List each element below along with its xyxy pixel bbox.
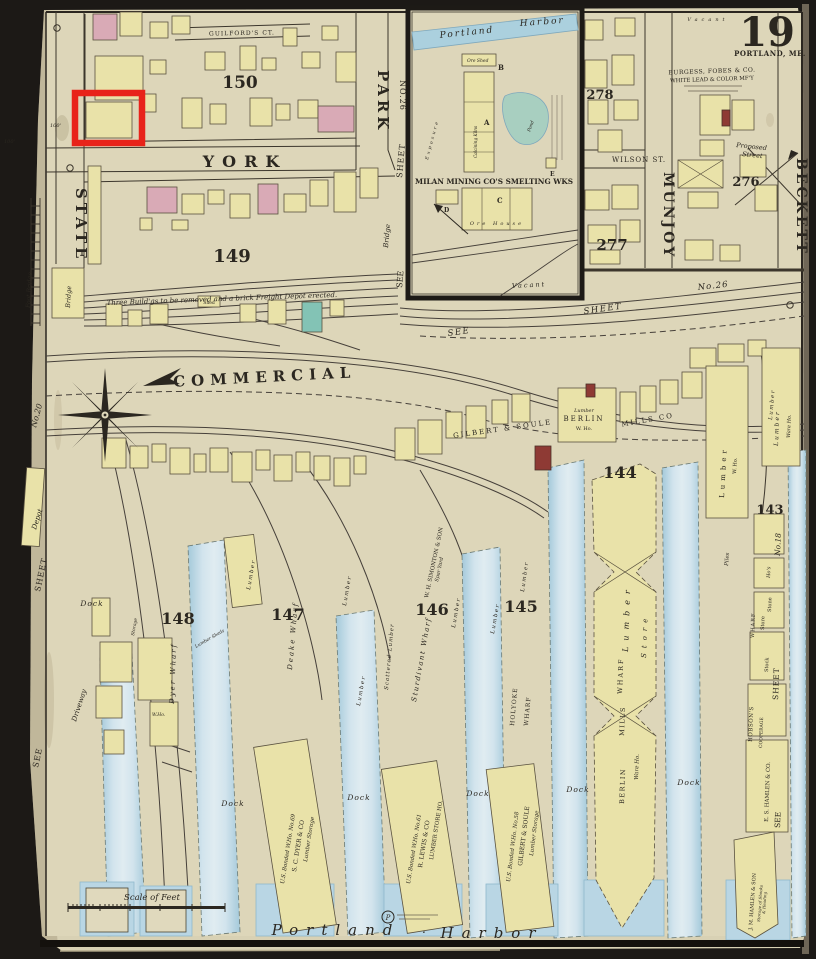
harbor-dot: . — [422, 922, 426, 936]
building — [688, 192, 718, 208]
building — [140, 218, 152, 230]
store-label: Store — [760, 616, 766, 630]
smelter-building-a — [464, 72, 494, 172]
inset-ore-house-label: Ore House — [470, 221, 524, 227]
inset-frame — [408, 8, 582, 298]
building — [512, 394, 530, 422]
inset-map: Portland Harbor Ore Shed B Calcining Kil… — [408, 8, 582, 298]
building — [354, 456, 366, 474]
block-145: 145 — [504, 597, 537, 616]
building — [700, 140, 724, 156]
dock-label: Dock — [346, 793, 370, 802]
building — [334, 458, 350, 486]
margin-see-right: SEE — [773, 812, 783, 828]
building — [130, 446, 148, 468]
hobsons-label: HOBSON'S — [748, 706, 755, 742]
building — [318, 106, 354, 132]
building — [232, 452, 252, 482]
margin-see-inset: SEE — [395, 270, 405, 288]
block-146: 146 — [415, 600, 448, 619]
building — [106, 304, 122, 326]
building — [395, 428, 415, 460]
building — [296, 452, 310, 472]
bm-mills-label: MILLS — [618, 706, 627, 736]
building — [690, 348, 716, 368]
dim-100b: 100' — [50, 123, 61, 129]
building — [585, 60, 607, 88]
street-label-munjoy: MUNJOY — [660, 172, 676, 259]
dock-label: Dock — [565, 785, 589, 794]
bm-wharf-label: WHARF — [616, 657, 625, 694]
building — [210, 448, 228, 472]
block-278: 278 — [586, 88, 613, 103]
stock-label: Stock — [764, 657, 771, 672]
scale-label: Scale of Feet — [124, 893, 181, 903]
building — [720, 245, 740, 261]
street-label-wilson: WILSON ST. — [612, 156, 666, 164]
building — [100, 642, 132, 682]
building — [660, 380, 678, 404]
building — [268, 300, 286, 324]
margin-bridge-state: Bridge — [64, 285, 73, 309]
building — [147, 187, 177, 213]
building — [194, 454, 206, 472]
building — [96, 686, 122, 718]
building — [256, 450, 270, 470]
building — [640, 386, 656, 412]
inset-key-a: A — [483, 118, 490, 127]
shed-label: Shed — [203, 300, 215, 306]
building — [150, 702, 178, 746]
building — [535, 446, 551, 470]
building — [240, 46, 256, 70]
building — [93, 14, 117, 40]
building — [588, 100, 608, 124]
sheet-city: PORTLAND, ME. — [734, 49, 806, 58]
building — [336, 52, 356, 82]
building — [314, 456, 330, 480]
berlin-mills-wharf-building — [592, 464, 656, 928]
map-canvas: Portland Harbor Ore Shed B Calcining Kil… — [0, 0, 816, 959]
dock-label: Dock — [676, 778, 700, 787]
inset-ore-shed-label: Ore Shed — [467, 58, 489, 64]
building — [150, 22, 168, 38]
berlin-who-label: W. Ho. — [576, 426, 593, 432]
building — [334, 172, 356, 212]
bottom-frame-band — [40, 940, 804, 947]
inset-key-b: B — [498, 63, 504, 72]
building — [585, 190, 609, 210]
building — [330, 300, 344, 316]
hos-label: Ho's — [766, 566, 772, 579]
building — [546, 158, 556, 168]
wharf-tip — [86, 888, 128, 932]
building — [722, 110, 730, 126]
street-label-park: PARK — [374, 70, 392, 133]
building — [360, 168, 378, 198]
building — [172, 220, 188, 230]
building — [205, 52, 225, 70]
building — [283, 28, 297, 46]
harbor-word-portland: Portland — [271, 921, 401, 939]
dock-label: Dock — [465, 789, 489, 798]
berlin-label: BERLIN — [563, 415, 604, 423]
building — [240, 304, 256, 322]
lumber-ware-house — [762, 348, 800, 466]
compass-rose — [58, 368, 152, 462]
building — [612, 185, 638, 209]
inset-key-d: D — [444, 207, 449, 214]
building — [598, 130, 622, 152]
building — [612, 55, 634, 85]
ware-right-label-1: Lumber — [773, 410, 781, 447]
ware-right-label-2: Ware Ho. — [786, 414, 793, 438]
dim-100a: 100' — [4, 139, 15, 145]
building — [128, 310, 142, 326]
building — [682, 372, 702, 398]
cooperage-label: COOPERAGE — [758, 717, 765, 748]
building — [104, 730, 124, 754]
block-277: 277 — [596, 236, 627, 254]
building — [298, 100, 318, 118]
building — [210, 104, 226, 124]
building — [492, 400, 508, 424]
building — [250, 98, 272, 126]
inset-title: MILAN MINING CO'S SMELTING WKS — [415, 177, 573, 186]
building — [585, 20, 603, 40]
street-label-york: YORK — [202, 152, 288, 171]
stone-label: Stone — [767, 597, 774, 612]
building — [230, 194, 250, 218]
building — [150, 304, 168, 324]
highlighted-building — [86, 102, 132, 138]
block-150: 150 — [222, 73, 258, 93]
margin-no26-park: NO.26 — [398, 80, 407, 111]
block-147: 147 — [271, 605, 304, 624]
inset-key-e: E — [550, 171, 555, 178]
building — [274, 455, 292, 481]
bm-berlin-label: BERLIN — [618, 768, 627, 804]
building — [182, 194, 204, 214]
dock-label: Dock — [79, 599, 103, 608]
lumber-warehouse — [706, 366, 748, 518]
building — [120, 12, 142, 36]
building — [732, 100, 754, 130]
bm-ware-label: Ware Ho. — [634, 754, 641, 780]
inset-calcining-label: Calcining Kilns — [473, 126, 478, 158]
berlin-lumber-label: Lumber — [573, 408, 594, 414]
street-label-beckett: BECKETT — [793, 158, 809, 256]
building — [302, 302, 322, 332]
building — [718, 344, 744, 362]
block-276: 276 — [732, 175, 759, 190]
street-label-guilfords-ct: GUILFORD'S CT. — [209, 29, 275, 37]
harbor-word-harbor: Harbor — [440, 924, 544, 942]
smelter-building-d — [436, 190, 458, 204]
margin-sheet-right: SHEET — [771, 667, 781, 700]
building — [170, 448, 190, 474]
sanborn-map-page: Portland Harbor Ore Shed B Calcining Kil… — [0, 0, 816, 959]
lumber-w-ho-label-2: W. Ho. — [732, 457, 739, 474]
wharf-right-label: WHARF — [750, 613, 757, 639]
building — [302, 52, 320, 68]
building — [172, 16, 190, 34]
building — [418, 420, 442, 454]
inset-key-c: C — [497, 196, 503, 205]
building — [258, 184, 278, 214]
piles-label: Piles — [724, 552, 731, 567]
building — [615, 18, 635, 36]
building — [182, 98, 202, 128]
block-149: 149 — [213, 246, 251, 267]
street-label-state: STATE — [72, 188, 90, 263]
margin-no18: No.18 — [773, 533, 783, 557]
building — [138, 638, 172, 700]
building — [276, 104, 290, 120]
bm-store-label: Store — [640, 614, 650, 659]
building — [310, 180, 328, 206]
building — [152, 444, 166, 462]
block-148: 148 — [161, 609, 194, 628]
building — [614, 100, 638, 120]
dock-label: Dock — [220, 799, 244, 808]
building — [685, 240, 713, 260]
building — [322, 26, 338, 40]
block-144: 144 — [603, 463, 636, 482]
block-143: 143 — [756, 503, 783, 518]
building — [262, 58, 276, 70]
building — [150, 60, 166, 74]
building — [586, 384, 595, 397]
vacant-top-label: Vacant — [687, 17, 728, 23]
page-stack-edge — [60, 950, 500, 951]
building — [284, 194, 306, 212]
building — [208, 190, 224, 204]
w-ho-label: W.Ho. — [152, 712, 166, 718]
